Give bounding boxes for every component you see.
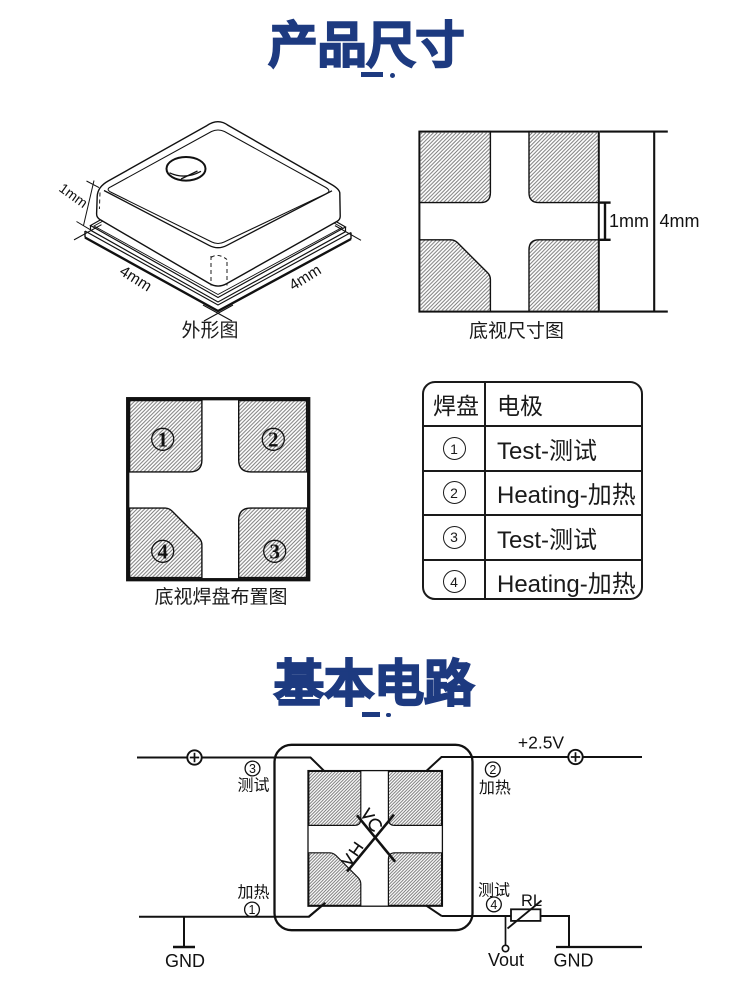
svg-text:底视尺寸图: 底视尺寸图	[469, 320, 564, 342]
svg-text:加热: 加热	[479, 779, 511, 797]
svg-text:1: 1	[157, 427, 168, 451]
svg-text:外形图: 外形图	[181, 320, 238, 342]
svg-text:4: 4	[490, 898, 497, 912]
svg-text:2: 2	[489, 763, 496, 777]
svg-text:测试: 测试	[237, 777, 269, 795]
svg-text:3: 3	[269, 540, 280, 564]
svg-text:加热: 加热	[237, 884, 269, 902]
svg-text:2: 2	[268, 427, 279, 451]
svg-text:1mm: 1mm	[609, 211, 649, 231]
svg-text:4mm: 4mm	[286, 262, 324, 295]
svg-text:+2.5V: +2.5V	[518, 733, 565, 753]
svg-text:1mm: 1mm	[56, 180, 91, 211]
svg-text:GND: GND	[165, 951, 205, 971]
svg-text:4mm: 4mm	[660, 211, 700, 231]
svg-text:1: 1	[249, 903, 256, 917]
svg-text:4: 4	[157, 540, 168, 564]
svg-text:RL: RL	[521, 892, 542, 910]
svg-text:3: 3	[249, 762, 256, 776]
svg-text:GND: GND	[554, 951, 594, 971]
svg-text:4mm: 4mm	[116, 263, 154, 296]
svg-text:Vout: Vout	[488, 950, 524, 970]
svg-text:底视焊盘布置图: 底视焊盘布置图	[154, 586, 287, 608]
